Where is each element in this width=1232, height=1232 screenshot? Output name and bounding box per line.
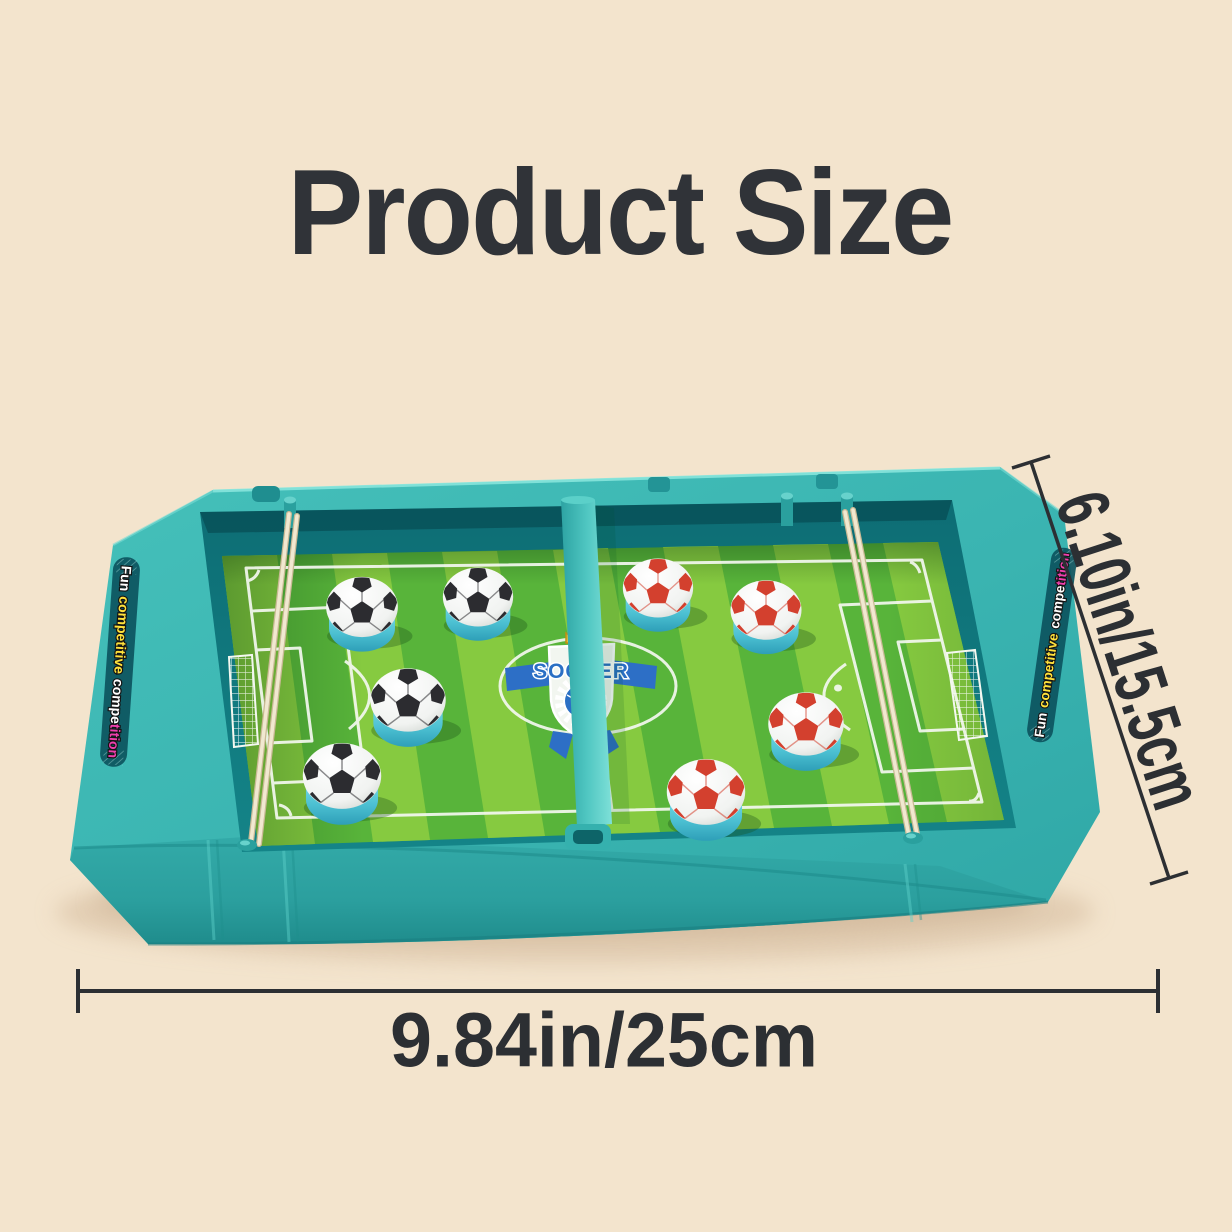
- page-title: Product Size: [288, 142, 953, 282]
- product-size-image: SOCCER: [0, 0, 1232, 1232]
- dimension-label-width: 9.84in/25cm: [390, 997, 818, 1086]
